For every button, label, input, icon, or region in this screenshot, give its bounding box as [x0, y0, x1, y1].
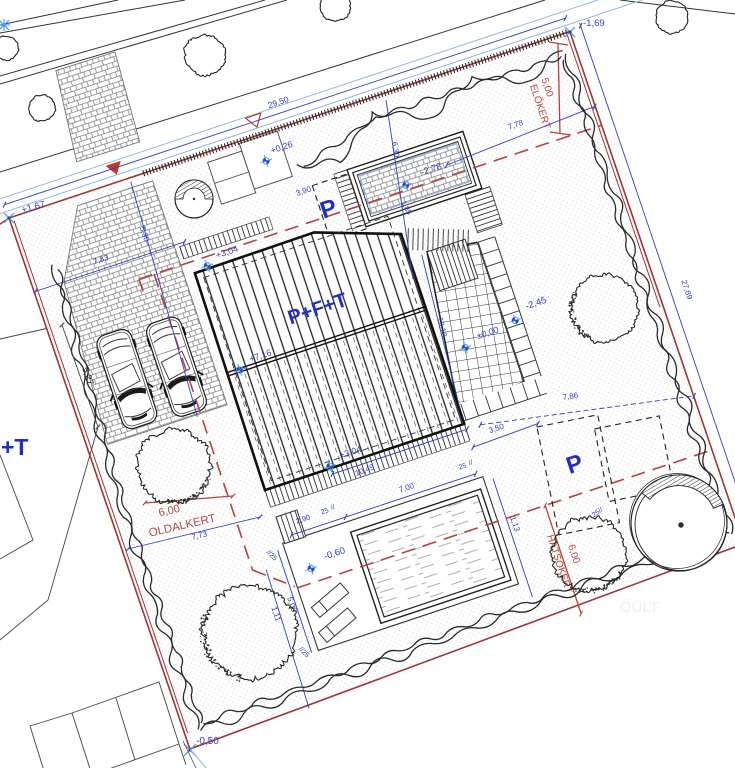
- svg-text:-1,69: -1,69: [583, 18, 605, 29]
- svg-text:+T: +T: [1, 434, 28, 460]
- svg-text:ŐÜLT: ŐÜLT: [620, 598, 659, 616]
- svg-text:-0,50: -0,50: [196, 736, 219, 747]
